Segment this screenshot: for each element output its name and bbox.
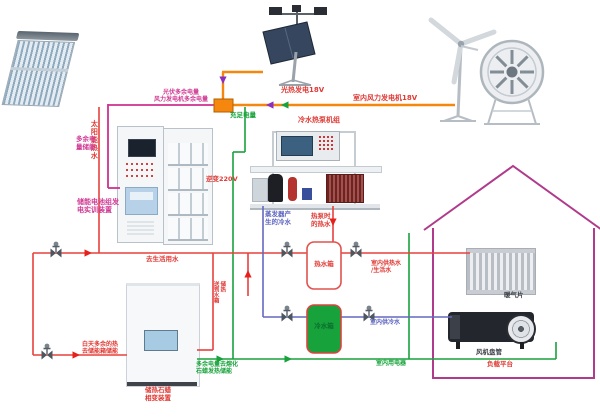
- heat-pump-label: 冷水热泵机组: [298, 116, 340, 124]
- valve-icon: [282, 306, 293, 322]
- to-tank-storage-label: 送到水箱 储热: [212, 281, 225, 303]
- load-platform-label: 负载平台: [487, 361, 513, 369]
- indoor-hot-supply-label: 室内供热水 /生活水: [371, 260, 401, 274]
- flow-arrow-icon: [266, 101, 274, 108]
- flow-arrow-icon: [244, 270, 251, 278]
- valve-icon: [42, 344, 53, 360]
- day-surplus-heat-label: 白天多余的热 去储能箱储能: [82, 341, 118, 355]
- power-bus-line: [222, 72, 455, 105]
- domestic-water-label: 去生活用水: [146, 256, 179, 264]
- battery-device-label: 储能电池组发 电实训装置: [77, 198, 119, 215]
- axial-fan-image: [481, 41, 543, 124]
- indoor-loads-note: 室内用电器: [376, 360, 406, 367]
- surplus-storage-note: 多余电 量储能: [76, 136, 96, 152]
- wind-generation-label: 室内风力发电机18V: [353, 94, 417, 102]
- pv-tracker-image: [263, 5, 327, 85]
- paraffin-melt-note: 多余电量去熔化 石蜡发热储能: [196, 361, 238, 375]
- house-outline: [424, 166, 600, 378]
- valve-icon: [51, 242, 62, 258]
- valve-icon: [282, 242, 293, 258]
- flow-arrow-icon: [285, 355, 293, 362]
- hot-tank-label: 热水箱: [309, 261, 339, 269]
- flow-arrow-icon: [219, 77, 226, 85]
- fan-coil-label: 风机盘管: [476, 349, 502, 357]
- heat-pump-hot-label: 热泵时 的热水: [311, 213, 331, 229]
- evaporator-cold-label: 蒸发器产 生的冷水: [265, 211, 291, 227]
- energy-system-diagram: 太阳能热水 光热发电18V 室内风力发电机18V 光伏多余电量 风力发电机多余电…: [0, 0, 600, 419]
- cold-water-pipe: [263, 206, 452, 317]
- radiator-label: 暖气片: [504, 292, 524, 300]
- indoor-cold-supply-label: 室内供冷水: [370, 319, 400, 326]
- paraffin-device-label: 储热石蜡 相变装置: [145, 387, 171, 403]
- flow-arrow-icon: [85, 249, 93, 256]
- flow-arrow-icon: [73, 351, 81, 358]
- cold-tank-label: 冷水箱: [309, 323, 339, 331]
- sufficient-power-note: 充足电量: [230, 112, 256, 120]
- inverter-note: 逆变220V: [206, 176, 238, 184]
- pv-generation-label: 光热发电18V: [281, 86, 324, 94]
- surplus-power-line: [108, 104, 214, 188]
- valve-icon: [351, 242, 362, 258]
- flow-arrow-icon: [281, 101, 289, 108]
- surplus-power-note: 光伏多余电量 风力发电机多余电量: [150, 89, 212, 103]
